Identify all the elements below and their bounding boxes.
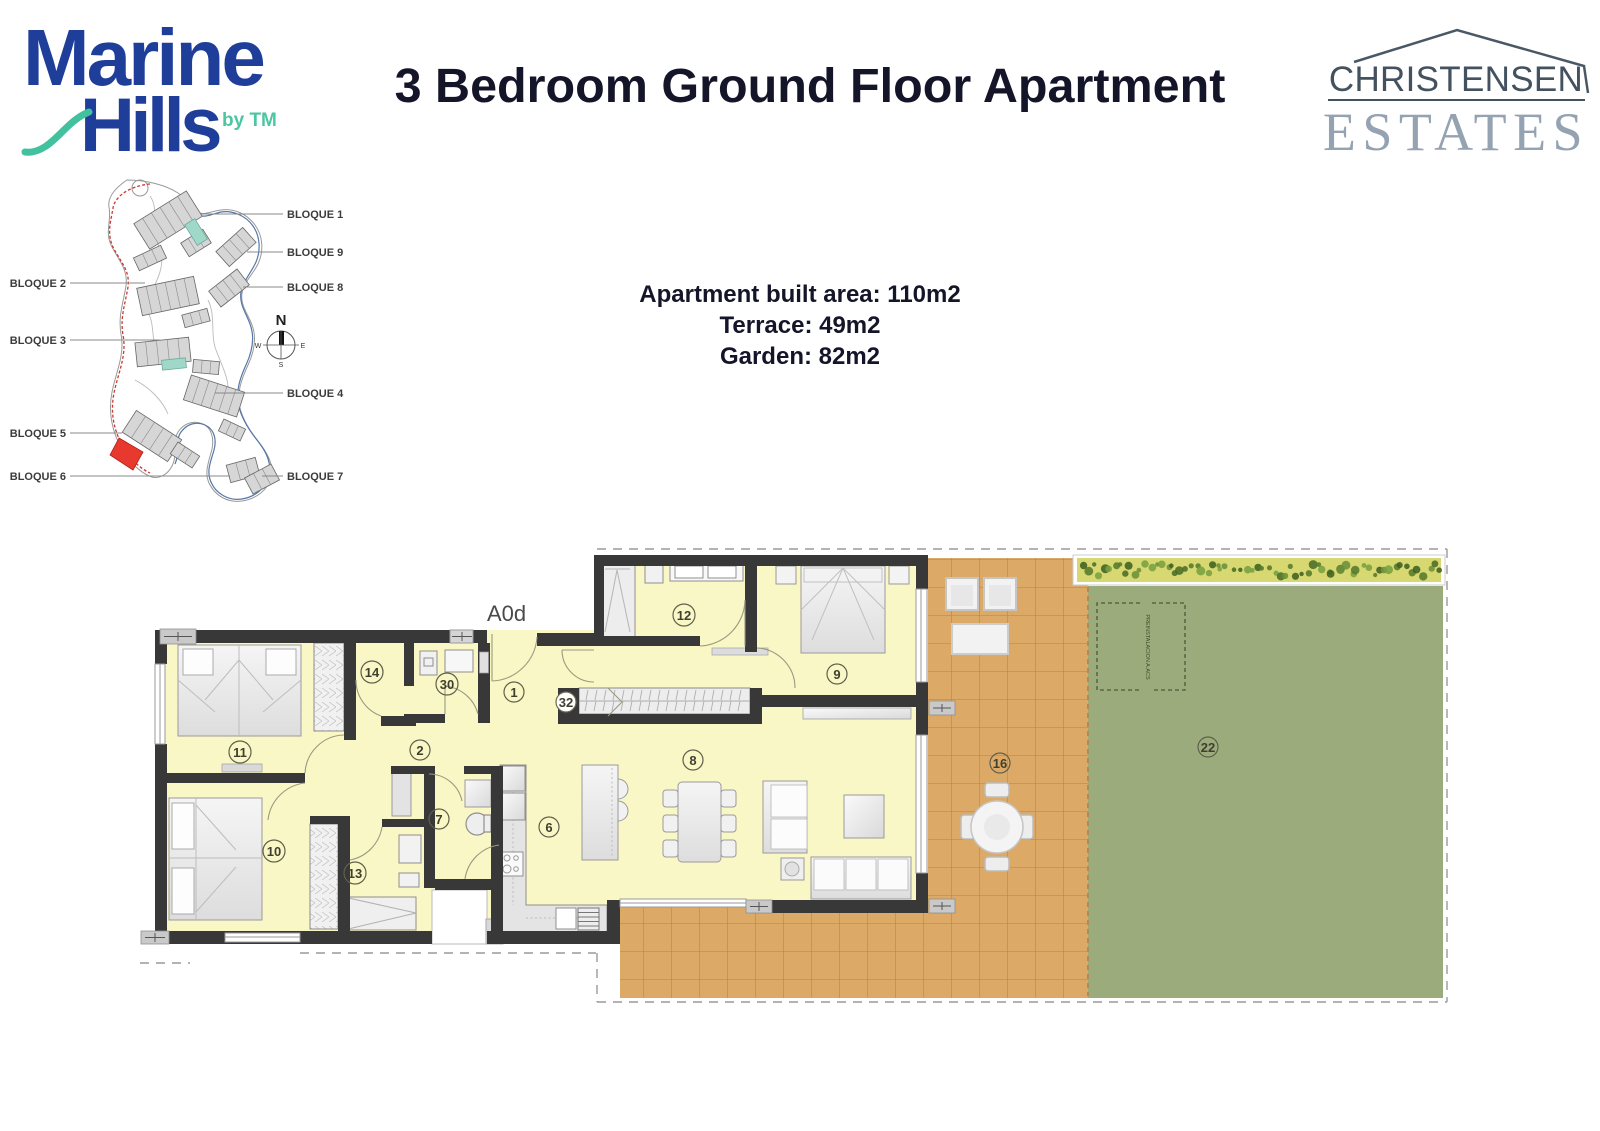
- svg-text:E: E: [301, 343, 306, 350]
- svg-text:16: 16: [993, 756, 1007, 771]
- svg-text:32: 32: [559, 695, 573, 710]
- svg-text:1: 1: [510, 685, 517, 700]
- svg-text:A0d: A0d: [487, 601, 526, 626]
- svg-text:BLOQUE 1: BLOQUE 1: [287, 209, 343, 221]
- svg-text:CHRISTENSEN: CHRISTENSEN: [1329, 60, 1583, 99]
- svg-text:S: S: [279, 362, 284, 369]
- svg-text:by TM: by TM: [222, 110, 277, 131]
- svg-text:12: 12: [677, 608, 691, 623]
- svg-text:PREINSTALACION A.ACS: PREINSTALACION A.ACS: [1144, 614, 1150, 680]
- svg-text:7: 7: [435, 812, 442, 827]
- svg-text:W: W: [255, 343, 262, 350]
- svg-text:BLOQUE 4: BLOQUE 4: [287, 388, 344, 400]
- svg-text:13: 13: [348, 866, 362, 881]
- svg-text:30: 30: [440, 677, 454, 692]
- svg-text:BLOQUE 2: BLOQUE 2: [10, 278, 66, 290]
- svg-text:BLOQUE 7: BLOQUE 7: [287, 471, 343, 483]
- svg-text:BLOQUE 6: BLOQUE 6: [10, 471, 66, 483]
- svg-text:6: 6: [545, 820, 552, 835]
- svg-text:N: N: [276, 312, 287, 329]
- svg-text:Hills: Hills: [80, 83, 220, 168]
- svg-text:BLOQUE 8: BLOQUE 8: [287, 282, 343, 294]
- svg-text:8: 8: [689, 753, 696, 768]
- svg-text:9: 9: [833, 667, 840, 682]
- svg-text:BLOQUE 3: BLOQUE 3: [10, 335, 66, 347]
- svg-text:BLOQUE 9: BLOQUE 9: [287, 247, 343, 259]
- svg-text:14: 14: [365, 665, 380, 680]
- svg-text:ESTATES: ESTATES: [1323, 102, 1589, 162]
- svg-text:BLOQUE 5: BLOQUE 5: [10, 428, 66, 440]
- svg-text:10: 10: [267, 844, 281, 859]
- svg-text:2: 2: [416, 743, 423, 758]
- svg-text:22: 22: [1201, 740, 1215, 755]
- svg-text:11: 11: [233, 745, 247, 760]
